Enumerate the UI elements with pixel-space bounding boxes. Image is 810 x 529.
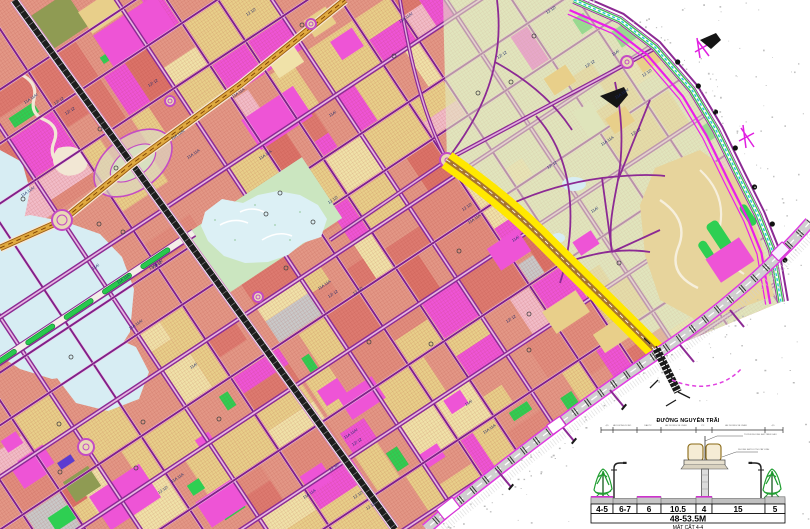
svg-text:DUONG SAT DO THI CAT LINH: DUONG SAT DO THI CAT LINH <box>738 448 770 451</box>
svg-text:15: 15 <box>733 505 743 514</box>
svg-text:PC: PC <box>701 425 704 427</box>
svg-text:10.5: 10.5 <box>670 505 686 514</box>
svg-text:HE DUONG XE CHAY: HE DUONG XE CHAY <box>725 424 747 427</box>
svg-text:6: 6 <box>647 505 652 514</box>
svg-text:5: 5 <box>773 505 778 514</box>
svg-text:HE DUONG DI BO: HE DUONG DI BO <box>613 425 632 427</box>
svg-text:4-5: 4-5 <box>596 505 608 514</box>
svg-text:48-53.5M: 48-53.5M <box>670 514 706 524</box>
svg-text:HE DUONG XE CHAY: HE DUONG XE CHAY <box>665 424 687 427</box>
svg-text:4: 4 <box>702 505 707 514</box>
svg-text:6-7: 6-7 <box>619 505 631 514</box>
svg-text:DAI PC: DAI PC <box>644 424 652 427</box>
svg-text:ĐƯỜNG NGUYỄN TRÃI: ĐƯỜNG NGUYỄN TRÃI <box>656 416 719 424</box>
svg-text:TUYEN DUONG SAT TREN CAO: TUYEN DUONG SAT TREN CAO <box>744 433 777 436</box>
